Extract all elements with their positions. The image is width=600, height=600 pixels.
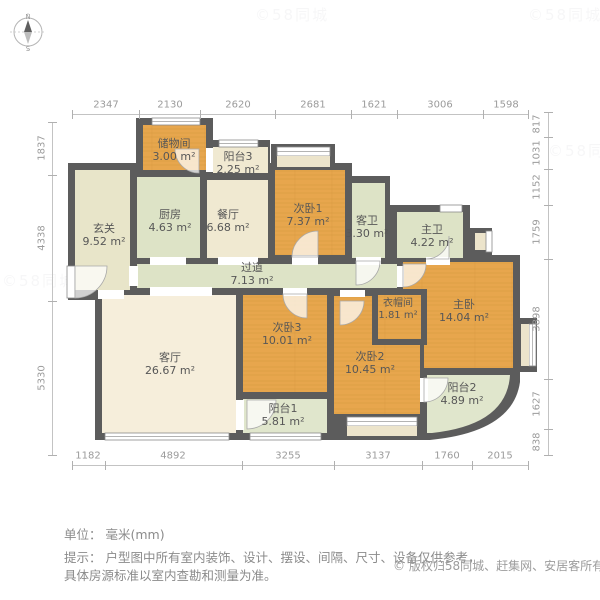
copyright-text: 版权归58同城、赶集网、安居客所有: [409, 559, 600, 573]
copyright-icon: ©: [393, 559, 405, 573]
floorplan-page: ©58同城 ©58同城 ©58同城 ©58同城 N S: [0, 0, 600, 600]
unit-note: 单位： 毫米(mm): [64, 524, 165, 543]
copyright-notice: © 版权归58同城、赶集网、安居客所有: [393, 557, 600, 574]
disclaimer-line2: 具体房源标准以室内查勘和测量为准。: [64, 565, 277, 584]
floorplan-canvas: [0, 0, 600, 600]
